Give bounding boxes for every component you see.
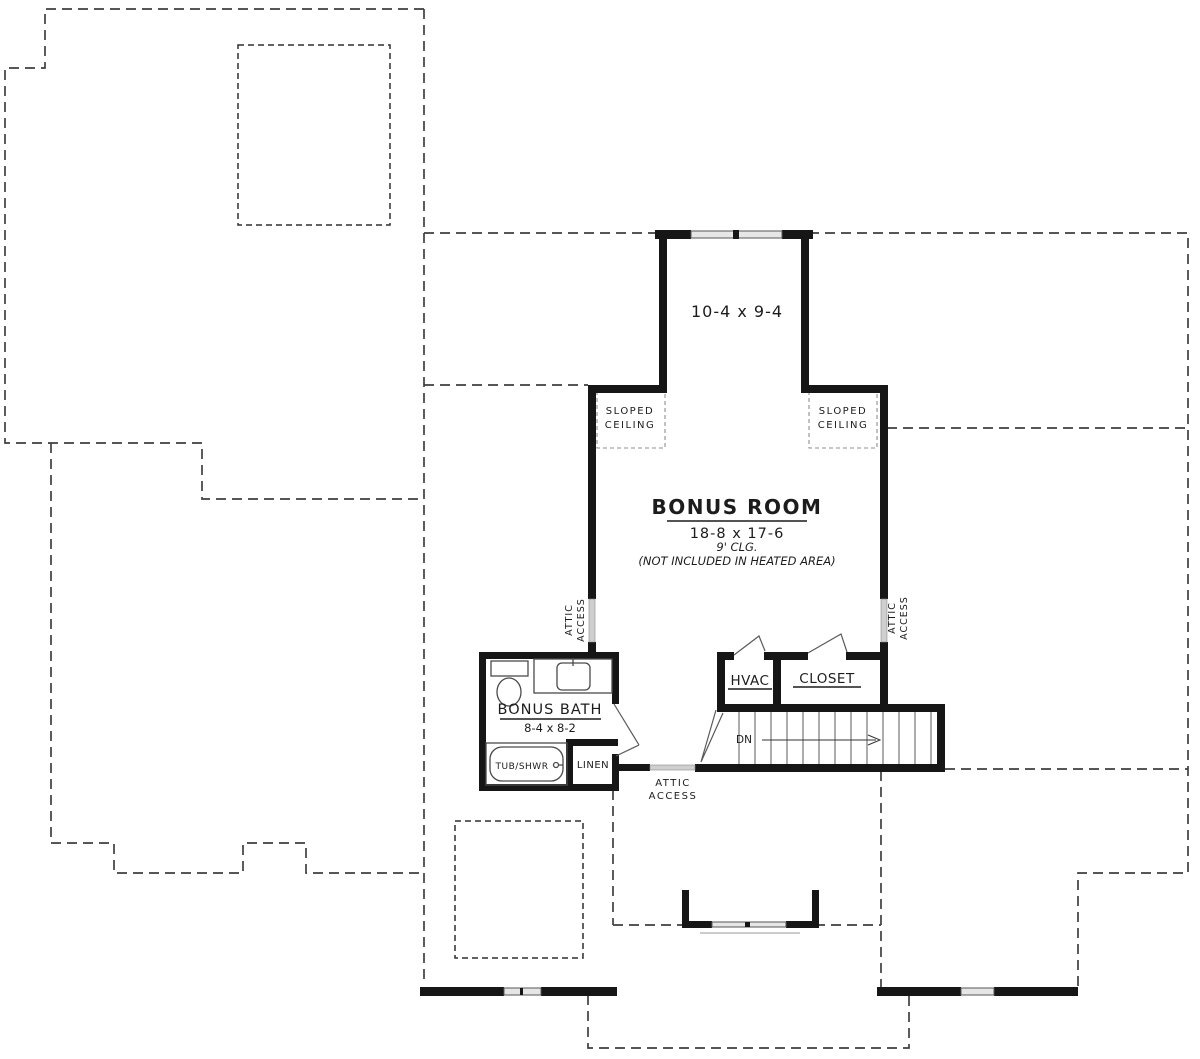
shower-head-icon	[554, 763, 559, 768]
bath-north-wall	[479, 652, 619, 659]
stair-north-wall	[717, 704, 945, 712]
bonus-step-wall-right	[801, 385, 888, 393]
staircase	[739, 712, 931, 764]
hvac-closet-north-wall	[764, 652, 808, 660]
attic-access-bottom-line-2: ACCESS	[649, 791, 698, 802]
sloped-ceiling-right-label-2: CEILING	[818, 420, 869, 431]
linen-label: LINEN	[577, 760, 609, 771]
bonus-west-wall	[588, 385, 596, 599]
bay-sill-wall-left	[682, 921, 712, 928]
attic-access-bottom-line-1: ATTIC	[655, 778, 691, 789]
dormer-window-mullion	[733, 230, 739, 239]
chimney-outline	[238, 45, 390, 225]
sloped-ceiling-right-label-1: SLOPED	[819, 406, 867, 417]
bonus-room-ceiling-note: 9' CLG.	[716, 540, 757, 554]
bonus-east-wall	[880, 385, 888, 599]
stair-hall-door-swing	[701, 710, 723, 762]
walls	[420, 230, 1078, 996]
stair-south-wall	[695, 764, 945, 772]
hvac-door-swing	[734, 636, 765, 655]
sloped-ceiling-left-label-2: CEILING	[605, 420, 656, 431]
south-window-right	[961, 988, 994, 995]
south-window-left-mullion	[520, 988, 523, 995]
roof-left-wing	[5, 9, 424, 499]
hvac-label: HVAC	[731, 673, 770, 689]
bonus-room-name: BONUS ROOM	[652, 495, 823, 519]
bath-east-wall-upper	[612, 652, 619, 704]
toilet-tank	[491, 661, 528, 676]
bath-east-wall-lower	[612, 754, 619, 791]
closet-label: CLOSET	[799, 671, 855, 687]
attic-access-left-line-2: ACCESS	[576, 598, 587, 642]
bath-west-wall	[479, 652, 486, 791]
bonus-bath-dimension: 8-4 x 8-2	[524, 721, 576, 735]
lower-roof-box	[455, 821, 583, 958]
bonus-step-wall-left	[588, 385, 667, 393]
floor-plan-canvas: 10-4 x 9-4 SLOPED CEILING SLOPED CEILING…	[0, 0, 1200, 1059]
south-wall-left-a	[420, 987, 504, 996]
upper-nook-dimension: 10-4 x 9-4	[691, 302, 783, 321]
floor-plan-page: 10-4 x 9-4 SLOPED CEILING SLOPED CEILING…	[0, 0, 1200, 1059]
roof-lower-left-wing	[51, 443, 423, 873]
tub-shower-label: TUB/SHWR	[495, 762, 549, 772]
hall-south-wall	[614, 764, 650, 771]
attic-access-panel-left	[589, 599, 595, 642]
attic-access-panel-bottom	[650, 765, 695, 770]
attic-access-right-line-2: ACCESS	[899, 596, 910, 640]
linen-top-wall	[566, 739, 618, 746]
hvac-west-wall	[717, 652, 725, 712]
dormer-top-wall-right	[782, 230, 813, 239]
bay-sill-wall-right	[786, 921, 819, 928]
vanity-sink	[557, 663, 590, 690]
stair-east-wall	[937, 704, 945, 772]
south-wall-left-b	[541, 987, 617, 996]
stairs-dn-label: DN	[736, 734, 752, 746]
south-wall-right-b	[994, 987, 1078, 996]
dormer-right-wall	[801, 230, 809, 393]
roof-bottom-right	[588, 771, 909, 1048]
labels: 10-4 x 9-4 SLOPED CEILING SLOPED CEILING…	[495, 302, 910, 802]
roof-outline	[5, 9, 1188, 1048]
bonus-bath-name: BONUS BATH	[498, 702, 603, 718]
bay-window-mullion	[745, 922, 750, 927]
attic-access-label-right: ATTIC ACCESS	[887, 596, 910, 640]
closet-door-swing	[808, 634, 847, 653]
bath-door-swing	[614, 704, 639, 756]
attic-access-label-left: ATTIC ACCESS	[564, 598, 587, 642]
sloped-ceiling-left-label-1: SLOPED	[606, 406, 654, 417]
closet-north-wall-right	[846, 652, 888, 660]
south-wall-right-a	[877, 987, 961, 996]
attic-access-right-line-1: ATTIC	[887, 602, 898, 634]
attic-access-left-line-1: ATTIC	[564, 604, 575, 636]
dormer-left-wall	[659, 230, 667, 393]
dormer-top-wall-left	[655, 230, 691, 239]
bonus-room-heated-note: (NOT INCLUDED IN HEATED AREA)	[638, 554, 835, 568]
hvac-closet-divider	[773, 652, 781, 712]
